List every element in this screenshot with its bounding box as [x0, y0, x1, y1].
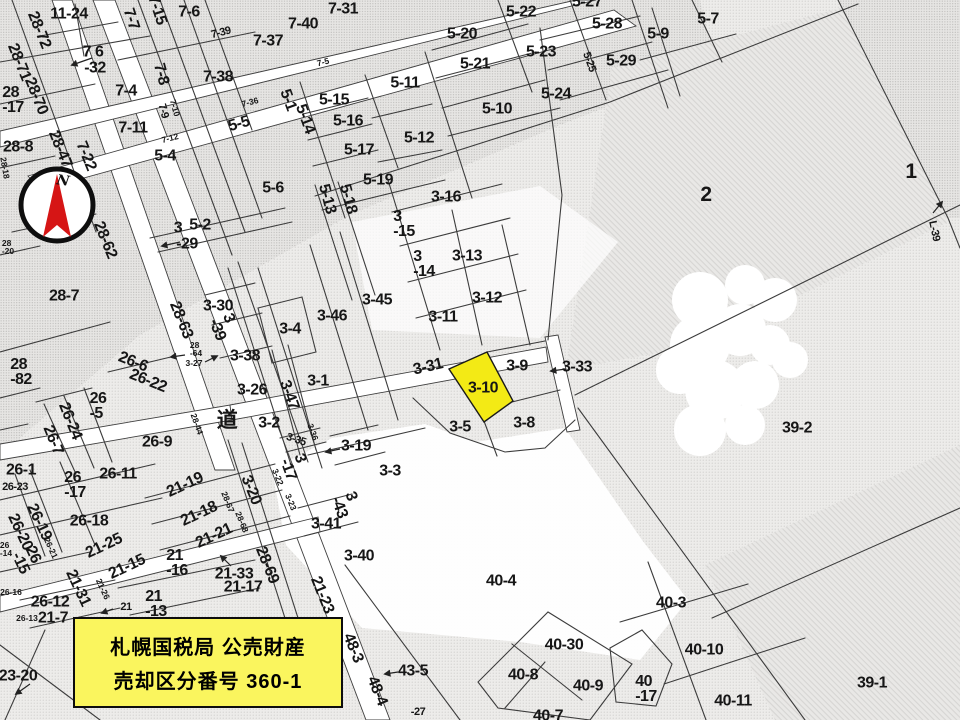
- parcel-label: -29: [176, 236, 198, 251]
- parcel-label: 3-1: [307, 373, 329, 388]
- parcel-label: 3-23: [284, 493, 298, 512]
- parcel-label: 5-18: [337, 183, 359, 216]
- cadastral-map: 11-2428-727-77-157-67-397-377-407-317 6-…: [0, 0, 960, 720]
- parcel-label: 26-16: [0, 588, 22, 596]
- parcel-label: 3-10: [468, 380, 498, 395]
- parcel-label: 3-45: [362, 292, 392, 307]
- parcel-label: 21-19: [164, 470, 205, 500]
- parcel-label: 3-31: [412, 356, 445, 378]
- parcel-label: 3-35: [285, 432, 307, 448]
- parcel-label: 26-11: [99, 466, 137, 481]
- parcel-label: 7-12: [161, 132, 179, 144]
- parcel-label: 3-16: [431, 189, 461, 204]
- parcel-label: 5-15: [319, 92, 349, 107]
- parcel-label: 5-23: [526, 44, 556, 59]
- parcel-label: 3-47: [277, 378, 302, 411]
- parcel-label: 7-37: [253, 33, 283, 48]
- annotation-line-2: 売却区分番号 360-1: [114, 665, 303, 694]
- parcel-label: 3 -39: [206, 311, 242, 342]
- parcel-label: 2: [700, 185, 711, 205]
- parcel-label: 3-20: [238, 473, 263, 507]
- parcel-label: 7-15: [145, 0, 169, 27]
- parcel-label: 5-11: [390, 75, 419, 90]
- parcel-label: 5-6: [262, 180, 284, 195]
- parcel-label: 21-18: [178, 499, 219, 529]
- parcel-label: 3-26: [237, 382, 267, 397]
- parcel-label: 11-24: [50, 6, 88, 21]
- parcel-label: L-39: [927, 220, 941, 242]
- parcel-label: 28-70: [22, 75, 50, 116]
- parcel-label: 40-3: [656, 595, 686, 610]
- parcel-label: 3-27: [185, 359, 202, 367]
- parcel-label: 7-4: [115, 83, 137, 98]
- parcel-label: 21 -16: [166, 548, 188, 578]
- parcel-label: 28-72: [25, 9, 53, 50]
- annotation-line-1: 札幌国税局 公売財産: [110, 631, 306, 660]
- parcel-label: 5-21: [460, 56, 490, 71]
- parcel-label: 40-8: [508, 667, 538, 682]
- parcel-label: 1: [905, 162, 916, 182]
- parcel-label: 21-23: [308, 574, 336, 615]
- parcel-label: 3-12: [472, 290, 502, 305]
- parcel-label: 26-9: [142, 434, 172, 449]
- parcel-label: 3-38: [230, 348, 260, 363]
- parcel-label: 26-22: [127, 367, 168, 395]
- parcel-label: 21 -13: [145, 589, 167, 619]
- parcel-label: 7 6: [83, 44, 104, 59]
- parcel-label: 5-28: [592, 16, 622, 31]
- parcel-label: 5-29: [606, 53, 636, 68]
- parcel-label: 3-40: [344, 548, 374, 563]
- parcel-label: 3-11: [428, 309, 457, 324]
- parcel-label: 3: [174, 220, 182, 235]
- parcel-label: 28 -82: [10, 357, 32, 387]
- parcel-label: 43-5: [398, 663, 428, 678]
- parcel-label: 28-68: [234, 510, 250, 533]
- parcel-label: -27: [411, 707, 425, 717]
- parcel-label: 26-7: [40, 423, 65, 457]
- parcel-label: 40-30: [545, 637, 583, 652]
- parcel-label: 7-40: [288, 16, 318, 31]
- parcel-label: 28-47: [46, 128, 74, 169]
- parcel-label: 21-7: [38, 610, 68, 625]
- parcel-label: 28 -64: [190, 341, 202, 357]
- parcel-label: 7-38: [203, 69, 233, 84]
- parcel-label: 3-30: [203, 298, 233, 313]
- parcel-label: 5-9: [647, 26, 669, 41]
- parcel-label: 28-7: [49, 288, 79, 303]
- parcel-label: 28 -17: [2, 85, 24, 115]
- parcel-label: 3 -15: [393, 209, 415, 239]
- parcel-label: 40-7: [533, 708, 563, 720]
- parcel-label: 5-4: [154, 148, 176, 163]
- parcel-label: 28-44: [189, 412, 204, 435]
- parcel-label: 40-10: [685, 642, 723, 657]
- parcel-label: 5-2: [189, 217, 211, 232]
- parcel-label: 21: [120, 602, 131, 612]
- parcel-label: 5-24: [541, 86, 571, 101]
- parcel-label: 7-5: [316, 57, 330, 68]
- parcel-label: 7-39: [210, 26, 232, 41]
- parcel-label: 39-2: [782, 420, 812, 435]
- parcel-label: 7-10: [169, 99, 181, 118]
- parcel-label: 26-13: [16, 614, 38, 622]
- parcel-label: 5-17: [344, 142, 374, 157]
- parcel-label: 48-4: [364, 674, 389, 708]
- parcel-label: 28 -20: [2, 239, 14, 255]
- parcel-label: 28-18: [0, 157, 11, 180]
- parcel-label: 23-20: [0, 668, 37, 683]
- parcel-label: 5-19: [363, 172, 393, 187]
- parcel-label: 7-36: [241, 96, 259, 108]
- parcel-label: 7-11: [118, 120, 147, 135]
- parcel-label: 28-63: [167, 299, 195, 340]
- parcel-label: 7-22: [73, 139, 98, 173]
- parcel-label: 3-36: [306, 423, 319, 442]
- parcel-label: 26-18: [70, 513, 108, 528]
- parcel-label: 3-5: [449, 419, 471, 434]
- parcel-label: 3-2: [258, 415, 280, 430]
- parcel-label: 21-15: [106, 552, 147, 582]
- parcel-label: 3-46: [317, 308, 347, 323]
- parcel-label: 26 -17: [64, 470, 86, 500]
- parcel-label: 48-3: [340, 631, 365, 665]
- parcel-label: -32: [84, 60, 106, 75]
- parcel-label: 26 -5: [90, 391, 107, 421]
- parcel-label: 3-9: [506, 358, 528, 373]
- parcel-label: 26 -15: [9, 544, 46, 576]
- parcel-label: 5-20: [447, 26, 477, 41]
- parcel-label: 28-67: [220, 490, 236, 513]
- parcel-label: 7-8: [151, 62, 171, 87]
- parcel-label: 40-9: [573, 678, 603, 693]
- parcel-label: 5-25: [581, 51, 598, 73]
- annotation-box: 札幌国税局 公売財産 売却区分番号 360-1: [73, 617, 343, 708]
- parcel-label: 5-22: [506, 4, 536, 19]
- parcel-label: 3-33: [562, 359, 592, 374]
- parcel-label: 40 -17: [635, 674, 657, 704]
- north-label: N: [56, 172, 71, 190]
- parcel-label: 26-1: [6, 462, 36, 477]
- parcel-label: 5-5: [227, 114, 252, 135]
- parcel-label: 40-11: [714, 693, 752, 708]
- parcel-label: 3-19: [341, 438, 371, 453]
- parcel-label: 40-4: [486, 573, 516, 588]
- parcel-label: 5-10: [482, 101, 512, 116]
- parcel-label: 26-12: [31, 594, 69, 609]
- parcel-label: 21-25: [83, 531, 124, 561]
- parcel-label: 7-6: [178, 4, 200, 19]
- parcel-label: 3-3: [379, 463, 401, 478]
- parcel-label: 21-17: [224, 579, 262, 594]
- parcel-label: 39-1: [857, 675, 887, 690]
- parcel-label: 3-13: [452, 248, 482, 263]
- parcel-label: 28-62: [91, 219, 119, 260]
- parcel-label: 3-41: [311, 516, 341, 531]
- parcel-label: 5-27: [572, 0, 602, 10]
- parcel-label: 5-16: [333, 113, 363, 128]
- parcel-label: 7-9: [156, 103, 170, 120]
- parcel-label: 21-21: [193, 521, 234, 551]
- parcel-label: 3 -14: [413, 249, 435, 279]
- parcel-label: 26-21: [43, 536, 59, 559]
- parcel-label: 3-8: [513, 415, 535, 430]
- parcel-label: 5-12: [404, 130, 434, 145]
- parcel-label: 5-13: [316, 183, 338, 216]
- road-kanji-label: 道: [217, 411, 238, 431]
- parcel-label: 5-7: [697, 11, 719, 26]
- parcel-label: 7-31: [328, 1, 358, 16]
- parcel-labels-layer: 11-2428-727-77-157-67-397-377-407-317 6-…: [0, 0, 960, 720]
- parcel-label: 3-4: [279, 321, 301, 336]
- parcel-label: 28-71: [5, 41, 33, 82]
- parcel-label: 26 -14: [0, 541, 12, 557]
- parcel-label: 26-23: [2, 482, 28, 492]
- parcel-label: 5-14: [293, 102, 318, 135]
- parcel-label: 7-7: [120, 6, 141, 31]
- parcel-label: 21-26: [95, 577, 111, 600]
- parcel-label: 28-8: [3, 139, 33, 154]
